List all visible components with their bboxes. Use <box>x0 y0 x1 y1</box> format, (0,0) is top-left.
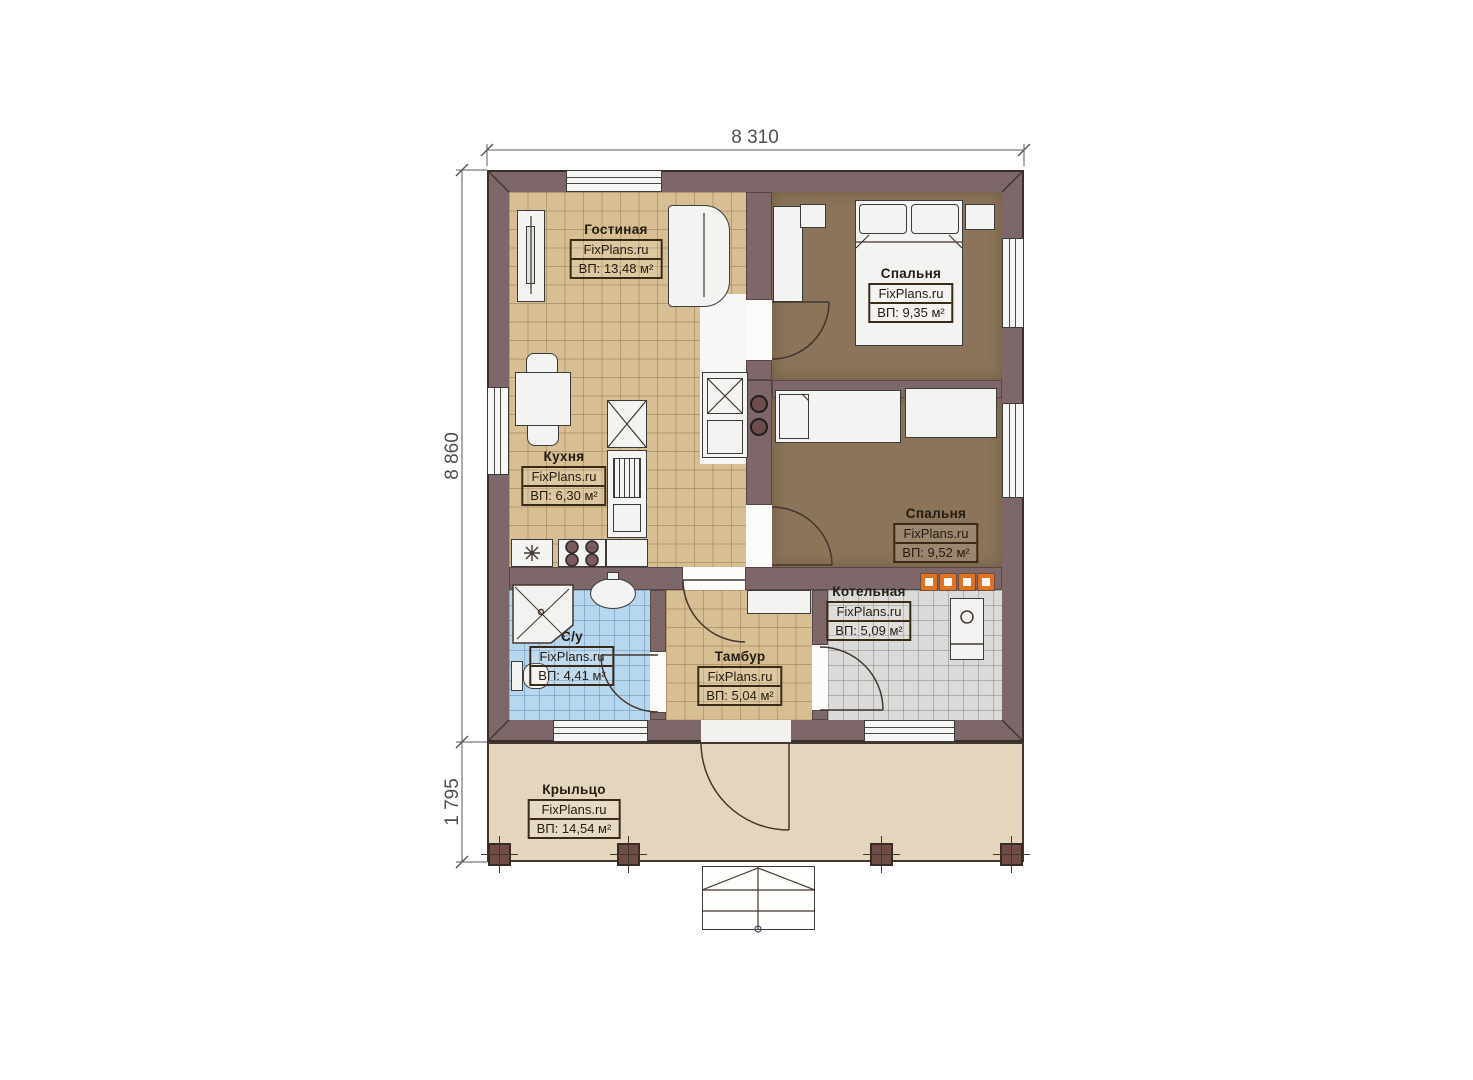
wardrobe-bedroom2 <box>905 388 997 438</box>
room-label-bedroom2: Спальня FixPlans.ru ВП: 9,52 м² <box>893 506 978 563</box>
porch-post <box>617 843 640 866</box>
area-label: ВП: 14,54 м² <box>530 818 619 837</box>
chimney-block-icon <box>940 574 956 590</box>
area-label: ВП: 9,35 м² <box>870 302 951 321</box>
hall-cabinet <box>747 590 811 614</box>
dining-table <box>515 372 571 426</box>
area-label: ВП: 13,48 м² <box>572 258 661 277</box>
dimension-line-left-main <box>456 164 487 748</box>
dimension-porch-label: 1 795 <box>442 778 463 826</box>
room-name: Тамбур <box>697 649 782 664</box>
room-name: Спальня <box>893 506 978 521</box>
tv-screen-icon <box>526 226 535 284</box>
fridge-icon <box>607 400 647 448</box>
brand-label: FixPlans.ru <box>530 801 619 818</box>
porch-post <box>870 843 893 866</box>
wall-bathroom-tambour <box>650 590 666 652</box>
room-label-bedroom1: Спальня FixPlans.ru ВП: 9,35 м² <box>868 266 953 323</box>
kitchen-cabinet-box <box>613 504 641 532</box>
room-info-box: FixPlans.ru ВП: 5,04 м² <box>697 666 782 706</box>
chimney-block-icon <box>921 574 937 590</box>
room-name: С/у <box>529 629 614 644</box>
pillow-icon <box>779 394 809 439</box>
window-bathroom-bottom <box>553 720 648 742</box>
brand-label: FixPlans.ru <box>895 525 976 542</box>
area-label: ВП: 6,30 м² <box>523 485 604 504</box>
entry-stairs <box>702 866 815 930</box>
window-bedroom1-right <box>1002 238 1024 328</box>
wall-living-bedroom1 <box>746 192 772 300</box>
stove-base <box>707 420 743 454</box>
wall-tambour-boiler-b <box>812 710 828 720</box>
dimension-width-label: 8 310 <box>731 127 779 148</box>
pillow-icon <box>911 204 959 234</box>
porch-post <box>1000 843 1023 866</box>
kitchen-corner-cabinet <box>511 539 553 567</box>
porch-post <box>488 843 511 866</box>
area-label: ВП: 9,52 м² <box>895 542 976 561</box>
chimney-block-icon <box>978 574 994 590</box>
brand-label: FixPlans.ru <box>531 648 612 665</box>
room-name: Котельная <box>826 584 911 599</box>
brand-label: FixPlans.ru <box>572 241 661 258</box>
brand-label: FixPlans.ru <box>828 603 909 620</box>
room-label-kitchen: Кухня FixPlans.ru ВП: 6,30 м² <box>521 449 606 506</box>
room-label-living: Гостиная FixPlans.ru ВП: 13,48 м² <box>570 222 663 279</box>
room-name: Спальня <box>868 266 953 281</box>
room-info-box: FixPlans.ru ВП: 9,35 м² <box>868 283 953 323</box>
room-info-box: FixPlans.ru ВП: 9,52 м² <box>893 523 978 563</box>
area-label: ВП: 4,41 м² <box>531 665 612 684</box>
room-info-box: FixPlans.ru ВП: 5,09 м² <box>826 601 911 641</box>
room-info-box: FixPlans.ru ВП: 6,30 м² <box>521 466 606 506</box>
pillow-icon <box>859 204 907 234</box>
area-label: ВП: 5,04 м² <box>699 685 780 704</box>
boiler-unit <box>950 598 984 660</box>
window-living-top <box>566 170 662 192</box>
room-label-bathroom: С/у FixPlans.ru ВП: 4,41 м² <box>529 629 614 686</box>
room-name: Крыльцо <box>528 782 621 797</box>
chimney-block-icon <box>959 574 975 590</box>
toilet-tank-icon <box>511 661 523 691</box>
dimension-height-label: 8 860 <box>442 432 463 480</box>
dining-chair-top <box>526 353 558 373</box>
window-kitchen-left <box>487 387 509 475</box>
brand-label: FixPlans.ru <box>699 668 780 685</box>
wardrobe-bedroom1 <box>773 206 803 302</box>
room-name: Кухня <box>521 449 606 464</box>
room-info-box: FixPlans.ru ВП: 13,48 м² <box>570 239 663 279</box>
kitchen-counter <box>606 539 648 567</box>
faucet-icon <box>607 572 619 580</box>
area-label: ВП: 5,09 м² <box>828 620 909 639</box>
room-name: Гостиная <box>570 222 663 237</box>
washbasin-icon <box>590 578 636 609</box>
entrance-opening <box>701 720 791 742</box>
nightstand-right <box>965 204 995 230</box>
brand-label: FixPlans.ru <box>523 468 604 485</box>
floor-plan-canvas: Гостиная FixPlans.ru ВП: 13,48 м² Спальн… <box>0 0 1473 1080</box>
kitchen-stove <box>558 539 606 567</box>
masonry-stove-icon <box>707 378 743 414</box>
window-bedroom2-right <box>1002 403 1024 498</box>
dining-chair-bottom <box>527 424 559 446</box>
room-info-box: FixPlans.ru ВП: 4,41 м² <box>529 646 614 686</box>
room-label-boiler: Котельная FixPlans.ru ВП: 5,09 м² <box>826 584 911 641</box>
dimension-line-top <box>481 144 1030 166</box>
wall-kitchen-bedroom2 <box>746 380 772 505</box>
dimension-line-left-porch <box>456 742 487 868</box>
room-label-tambour: Тамбур FixPlans.ru ВП: 5,04 м² <box>697 649 782 706</box>
wall-living-bedroom1-b <box>746 360 772 380</box>
sofa <box>668 205 730 307</box>
window-boiler-bottom <box>864 720 955 742</box>
kitchen-cabinet-louver <box>613 458 641 498</box>
nightstand-left <box>800 204 826 228</box>
wall-bathroom-tambour-b <box>650 712 666 720</box>
room-label-porch: Крыльцо FixPlans.ru ВП: 14,54 м² <box>528 782 621 839</box>
room-info-box: FixPlans.ru ВП: 14,54 м² <box>528 799 621 839</box>
brand-label: FixPlans.ru <box>870 285 951 302</box>
